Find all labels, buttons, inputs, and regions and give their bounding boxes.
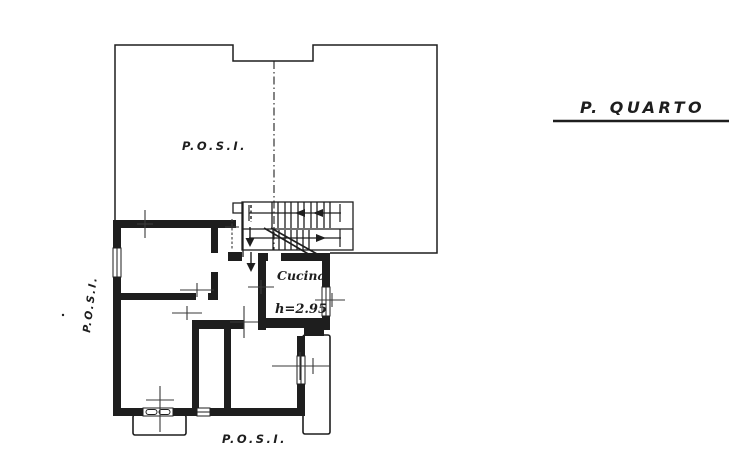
page-title: P. QUARTO: [580, 98, 705, 117]
stair-landing-notch: [233, 203, 242, 213]
window-bottom-small: [197, 408, 210, 416]
floor-plan-page: P.O.S.I. P.O.S.I. P.O.S.I. Cucina h=2.95…: [0, 0, 752, 471]
wall: [192, 329, 199, 408]
terrace-bottom-label: P.O.S.I.: [222, 432, 287, 446]
window-room-right: [297, 356, 305, 384]
wall: [224, 329, 231, 408]
terrace-left-label: P.O.S.I.: [81, 275, 100, 333]
cross-mark: [230, 306, 258, 338]
arrow-left-icon: [313, 209, 323, 217]
staircase: [233, 202, 353, 257]
wall: [211, 220, 218, 253]
entry-path: [246, 205, 256, 272]
wall: [208, 293, 218, 300]
arrow-left-icon: [295, 209, 305, 217]
wall: [297, 384, 305, 416]
ink-dot: [62, 314, 64, 316]
window-bottom-left: [143, 408, 173, 416]
kitchen-height-label: h=2.95: [275, 302, 327, 317]
wall: [297, 336, 305, 356]
arrow-down-icon: [246, 238, 255, 247]
title-block: P. QUARTO: [553, 98, 729, 121]
arrow-down-icon: [247, 263, 256, 272]
wall: [173, 408, 197, 416]
wall: [113, 293, 196, 300]
cross-mark: [172, 306, 202, 320]
wall: [228, 252, 242, 261]
kitchen-wall: [258, 253, 266, 330]
cross-mark: [137, 210, 153, 238]
balcony-right: [303, 335, 330, 434]
cross-mark: [248, 280, 274, 294]
wall: [192, 320, 244, 329]
floor-plan-svg: P.O.S.I. P.O.S.I. P.O.S.I. Cucina h=2.95…: [0, 0, 752, 471]
stair-direction-lines: [249, 204, 341, 247]
terrace-top-label: P.O.S.I.: [182, 139, 247, 153]
kitchen-name-label: Cucina: [277, 268, 326, 283]
wall: [113, 408, 143, 416]
wall: [304, 324, 324, 336]
wall: [210, 408, 305, 416]
arrow-right-icon: [316, 234, 326, 242]
window-left-wall: [113, 248, 121, 277]
